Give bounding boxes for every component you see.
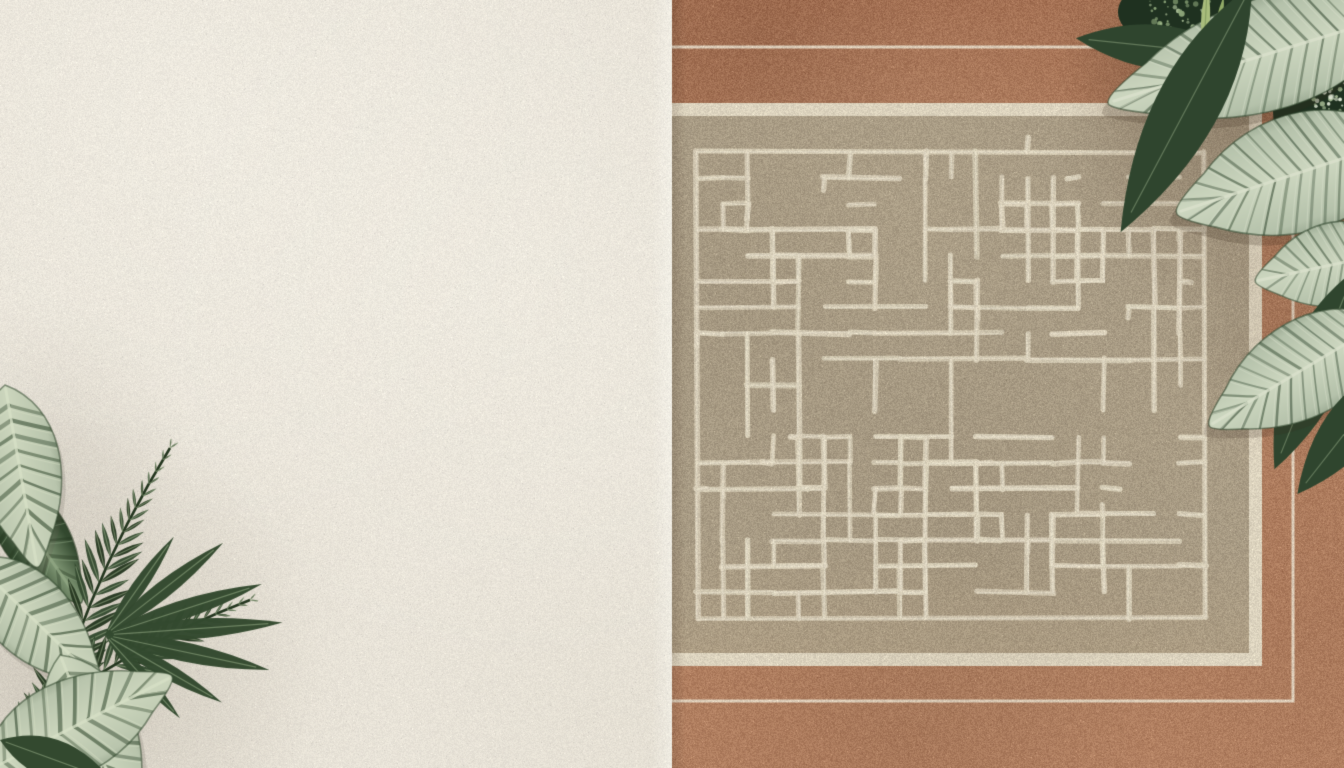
scene-canvas [0, 0, 1344, 768]
flatlay-scene [0, 0, 1344, 768]
